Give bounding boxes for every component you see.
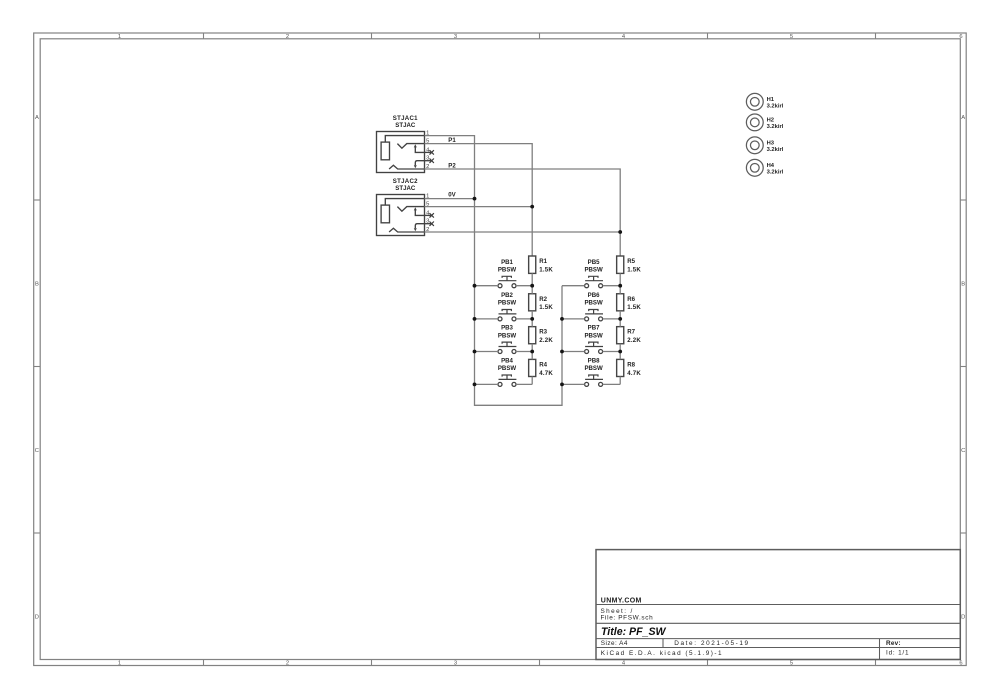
svg-text:6: 6 — [959, 34, 962, 40]
svg-text:A: A — [961, 115, 965, 121]
svg-text:C: C — [961, 448, 965, 454]
svg-text:PBSW: PBSW — [498, 300, 517, 307]
svg-text:Date: 2021-05-19: Date: 2021-05-19 — [674, 640, 749, 647]
svg-text:KiCad E.D.A. kicad (5.1.9)-1: KiCad E.D.A. kicad (5.1.9)-1 — [601, 650, 723, 657]
svg-text:Id: 1/1: Id: 1/1 — [886, 649, 909, 656]
svg-text:H4: H4 — [767, 163, 775, 169]
svg-text:3.2kirl: 3.2kirl — [767, 104, 784, 110]
svg-text:4.7K: 4.7K — [539, 370, 553, 377]
svg-text:PBSW: PBSW — [584, 300, 603, 307]
svg-text:PB2: PB2 — [501, 292, 513, 299]
svg-text:B: B — [961, 281, 965, 287]
svg-text:PBSW: PBSW — [584, 365, 603, 372]
svg-text:R6: R6 — [627, 296, 635, 303]
svg-text:3: 3 — [454, 661, 457, 667]
svg-text:2.2K: 2.2K — [627, 337, 641, 344]
svg-text:Title: PF_SW: Title: PF_SW — [601, 626, 667, 638]
svg-text:2: 2 — [286, 34, 289, 40]
svg-text:PB4: PB4 — [501, 358, 513, 365]
svg-text:PB1: PB1 — [501, 259, 513, 266]
svg-text:R7: R7 — [627, 329, 635, 336]
svg-text:1.5K: 1.5K — [539, 267, 553, 274]
svg-text:P2: P2 — [448, 162, 456, 169]
svg-text:H3: H3 — [767, 140, 775, 146]
svg-text:R1: R1 — [539, 258, 547, 265]
svg-text:PB6: PB6 — [588, 292, 600, 299]
svg-text:R3: R3 — [539, 329, 547, 336]
svg-text:3.2kirl: 3.2kirl — [767, 124, 784, 130]
svg-text:D: D — [961, 614, 965, 620]
svg-text:PB7: PB7 — [588, 325, 600, 332]
svg-text:PB3: PB3 — [501, 325, 513, 332]
svg-text:B: B — [35, 281, 39, 287]
svg-text:4.7K: 4.7K — [627, 370, 641, 377]
svg-text:UNMY.COM: UNMY.COM — [601, 597, 642, 604]
svg-text:5: 5 — [790, 34, 793, 40]
svg-text:PB5: PB5 — [588, 259, 600, 266]
svg-text:6: 6 — [959, 661, 962, 667]
svg-text:PBSW: PBSW — [584, 332, 603, 339]
svg-text:STJAC: STJAC — [395, 122, 416, 129]
svg-text:STJAC: STJAC — [395, 185, 416, 192]
svg-text:D: D — [35, 614, 39, 620]
svg-text:C: C — [35, 448, 39, 454]
svg-text:P1: P1 — [448, 137, 456, 144]
svg-text:1.5K: 1.5K — [539, 304, 553, 311]
svg-text:1.5K: 1.5K — [627, 304, 641, 311]
svg-text:5: 5 — [790, 661, 793, 667]
svg-text:PB8: PB8 — [588, 358, 600, 365]
svg-text:R4: R4 — [539, 361, 547, 368]
svg-text:1: 1 — [118, 661, 121, 667]
svg-text:Size: A4: Size: A4 — [601, 640, 628, 647]
svg-text:H1: H1 — [767, 97, 775, 103]
svg-text:0V: 0V — [448, 192, 456, 199]
svg-text:Rev:: Rev: — [886, 640, 901, 647]
svg-text:PBSW: PBSW — [498, 267, 517, 274]
svg-text:1.5K: 1.5K — [627, 267, 641, 274]
svg-text:H2: H2 — [767, 118, 774, 124]
svg-text:2: 2 — [286, 661, 289, 667]
svg-text:2.2K: 2.2K — [539, 337, 553, 344]
svg-text:3.2kirl: 3.2kirl — [767, 147, 784, 153]
svg-text:R8: R8 — [627, 361, 635, 368]
svg-text:1: 1 — [118, 34, 121, 40]
svg-text:3: 3 — [454, 34, 457, 40]
svg-text:PBSW: PBSW — [498, 332, 517, 339]
svg-text:3.2kirl: 3.2kirl — [767, 170, 784, 176]
svg-text:A: A — [35, 115, 39, 121]
svg-text:R2: R2 — [539, 296, 547, 303]
svg-text:PBSW: PBSW — [584, 267, 603, 274]
svg-text:File: PFSW.sch: File: PFSW.sch — [601, 614, 654, 621]
svg-text:PBSW: PBSW — [498, 365, 517, 372]
svg-text:R5: R5 — [627, 258, 635, 265]
